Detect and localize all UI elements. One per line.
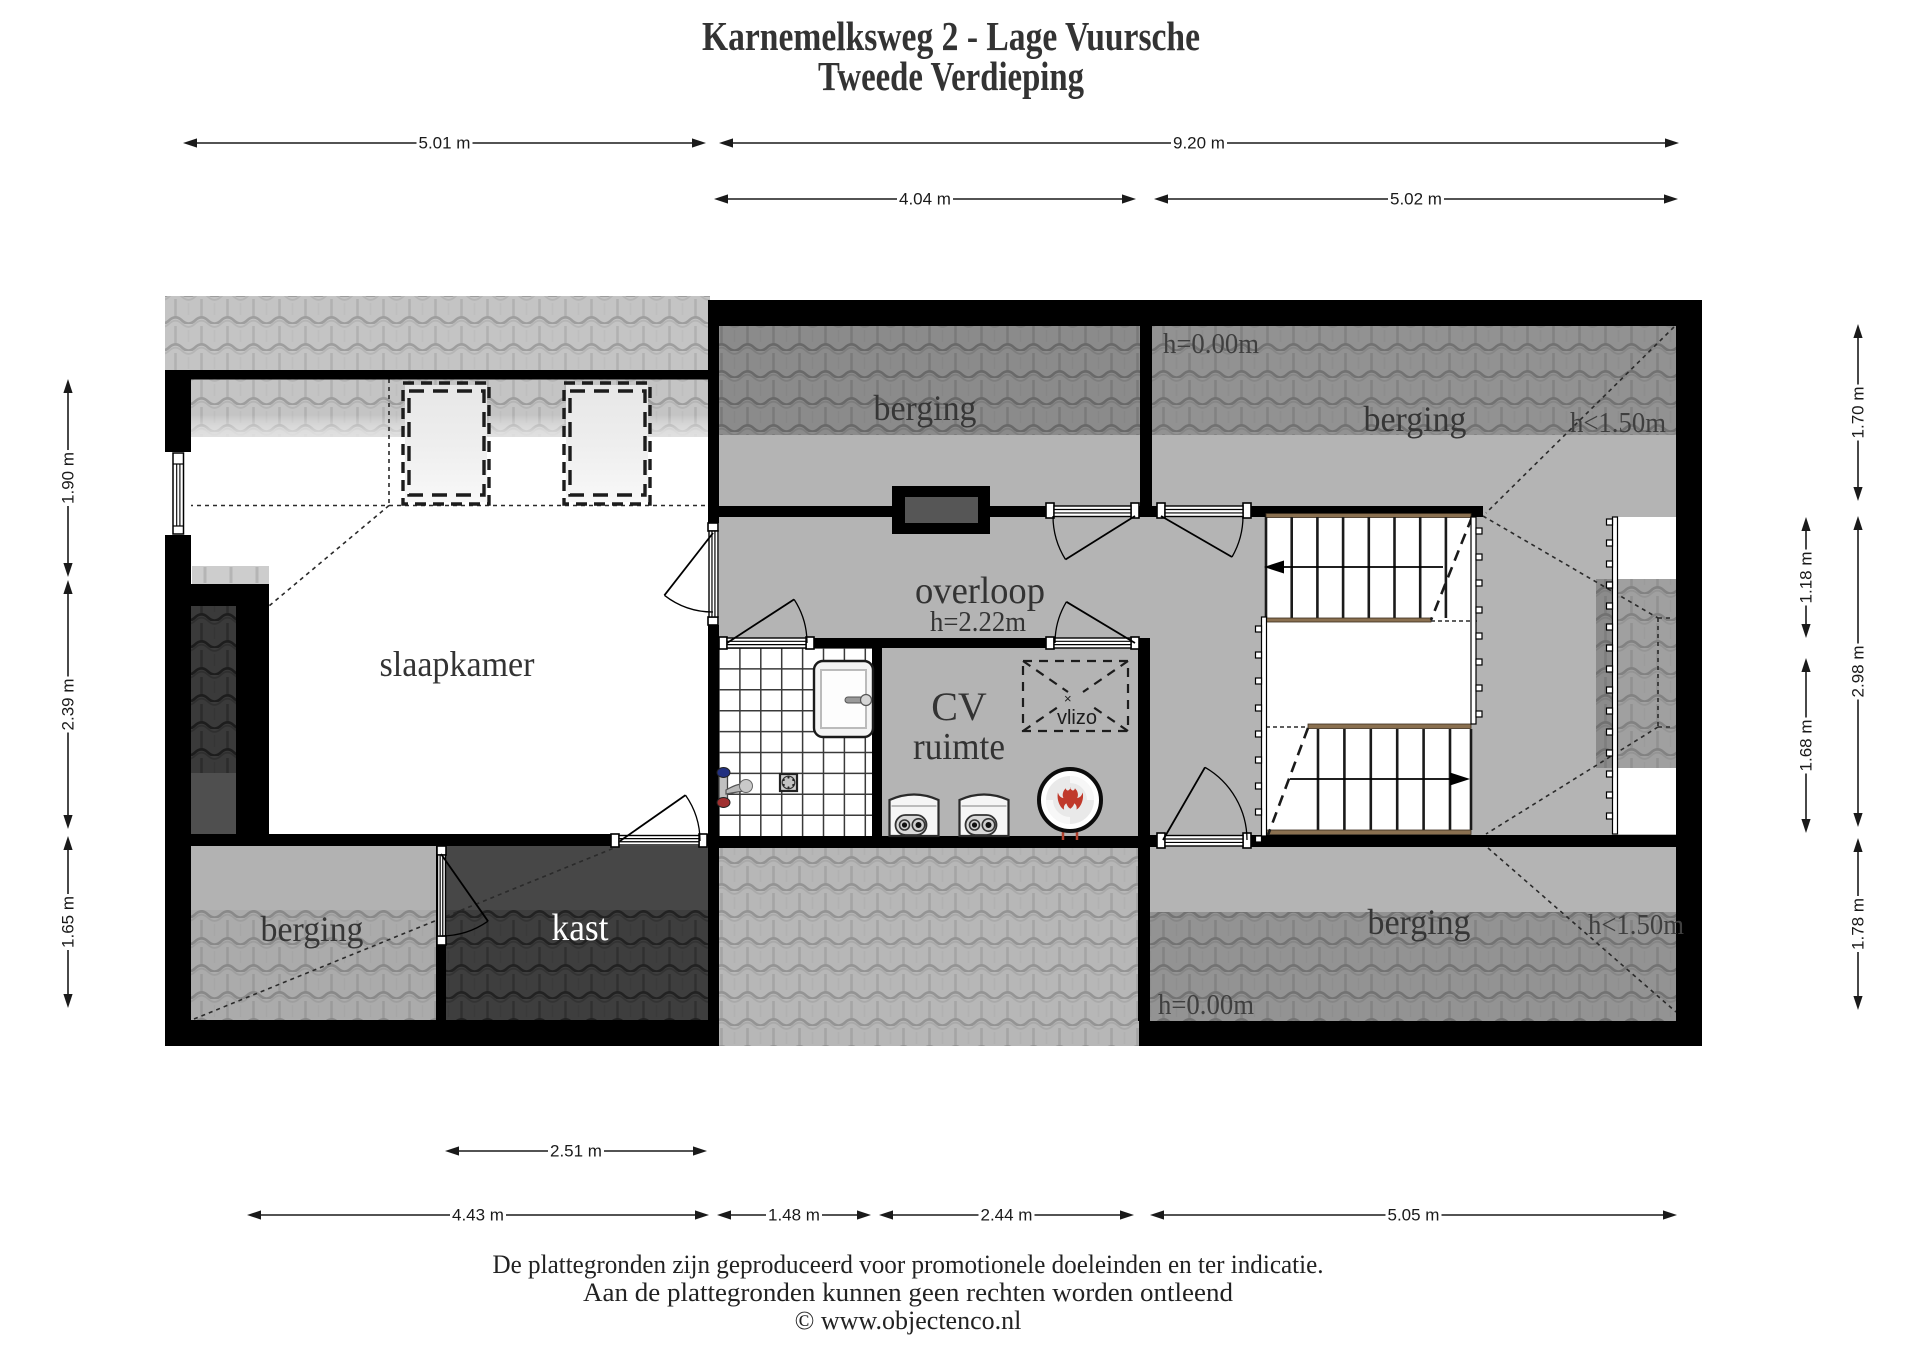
- svg-text:ruimte: ruimte: [913, 726, 1005, 768]
- svg-text:×: ×: [1064, 691, 1072, 706]
- svg-text:4.04 m: 4.04 m: [899, 190, 951, 209]
- svg-text:h<1.50m: h<1.50m: [1570, 407, 1666, 439]
- svg-text:CV: CV: [931, 684, 987, 729]
- svg-text:9.20 m: 9.20 m: [1173, 134, 1225, 153]
- svg-text:1.90 m: 1.90 m: [59, 452, 78, 504]
- svg-text:Aan de plattegronden kunnen ge: Aan de plattegronden kunnen geen rechten…: [583, 1278, 1233, 1307]
- svg-text:1.65 m: 1.65 m: [59, 896, 78, 948]
- svg-text:De plattegronden zijn geproduc: De plattegronden zijn geproduceerd voor …: [493, 1250, 1324, 1279]
- svg-text:berging: berging: [1364, 399, 1467, 439]
- svg-text:© www.objectenco.nl: © www.objectenco.nl: [795, 1306, 1022, 1335]
- svg-text:5.02 m: 5.02 m: [1390, 190, 1442, 209]
- svg-text:h<1.50m: h<1.50m: [1588, 909, 1684, 941]
- svg-text:h=2.22m: h=2.22m: [930, 607, 1026, 638]
- svg-text:5.01 m: 5.01 m: [419, 134, 471, 153]
- svg-text:1.78 m: 1.78 m: [1849, 898, 1868, 950]
- svg-text:kast: kast: [552, 907, 609, 949]
- svg-text:5.05 m: 5.05 m: [1388, 1206, 1440, 1225]
- svg-text:berging: berging: [261, 909, 364, 949]
- svg-text:berging: berging: [874, 388, 977, 428]
- svg-text:overloop: overloop: [915, 570, 1045, 612]
- svg-text:4.43 m: 4.43 m: [452, 1206, 504, 1225]
- svg-text:2.98 m: 2.98 m: [1849, 646, 1868, 698]
- svg-text:h=0.00m: h=0.00m: [1158, 989, 1254, 1021]
- svg-text:1.70 m: 1.70 m: [1849, 387, 1868, 439]
- svg-text:berging: berging: [1368, 902, 1471, 942]
- svg-text:slaapkamer: slaapkamer: [380, 644, 535, 684]
- svg-text:1.68 m: 1.68 m: [1797, 720, 1816, 772]
- svg-text:vlizo: vlizo: [1057, 707, 1097, 729]
- svg-text:Tweede Verdieping: Tweede Verdieping: [818, 53, 1084, 99]
- svg-text:2.39 m: 2.39 m: [59, 679, 78, 731]
- svg-text:2.44 m: 2.44 m: [981, 1206, 1033, 1225]
- svg-text:1.48 m: 1.48 m: [768, 1206, 820, 1225]
- svg-text:h=0.00m: h=0.00m: [1163, 328, 1259, 360]
- svg-text:1.18 m: 1.18 m: [1797, 552, 1816, 604]
- svg-text:2.51 m: 2.51 m: [550, 1142, 602, 1161]
